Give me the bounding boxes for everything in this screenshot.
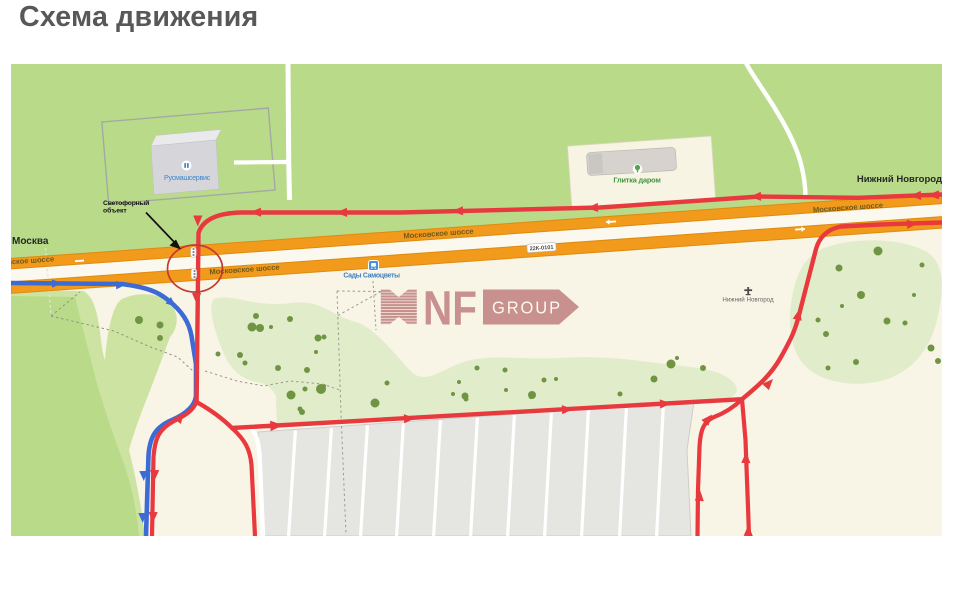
svg-text:NF: NF bbox=[423, 283, 477, 336]
svg-text:Русмашсервис: Русмашсервис bbox=[164, 173, 211, 182]
svg-text:Сады Самоцветы: Сады Самоцветы bbox=[343, 273, 400, 280]
svg-text:объект: объект bbox=[103, 207, 127, 215]
svg-text:Нижний Новгород: Нижний Новгород bbox=[857, 174, 942, 185]
svg-text:Нижний Новгород: Нижний Новгород bbox=[722, 297, 774, 304]
svg-text:Светофорный: Светофорный bbox=[103, 199, 149, 207]
svg-text:Глитка даром: Глитка даром bbox=[613, 176, 660, 185]
svg-text:GROUP: GROUP bbox=[492, 298, 562, 318]
svg-text:Москва: Москва bbox=[12, 236, 49, 247]
